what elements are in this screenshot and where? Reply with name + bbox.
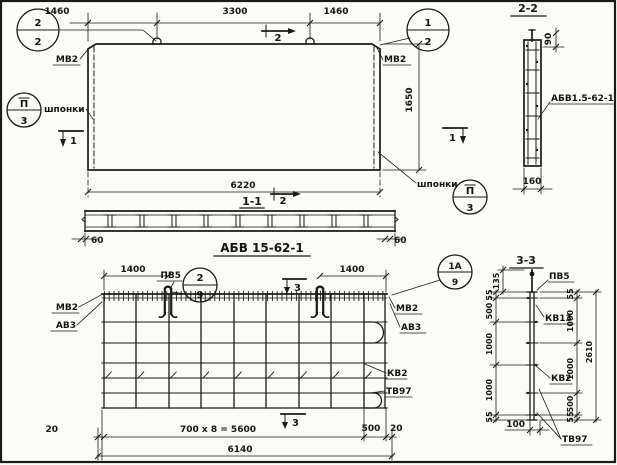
label-tv97-mesh: ТВ97 bbox=[386, 387, 412, 397]
section-mark-3-bottom: 3 bbox=[281, 414, 305, 429]
svg-text:1000: 1000 bbox=[485, 378, 494, 401]
mark-label: 2 bbox=[275, 33, 282, 44]
dim-100: 100 bbox=[505, 420, 549, 435]
dim-60-right: 60 bbox=[377, 233, 407, 246]
label-mv2-mesh-right: МВ2 bbox=[396, 304, 418, 314]
label-tv97-33: ТВ97 bbox=[562, 435, 588, 445]
top-chord-hatch bbox=[102, 291, 387, 301]
section-mark-2-on-1-1: 2 bbox=[271, 188, 301, 207]
svg-text:55: 55 bbox=[485, 289, 494, 301]
label-mv2-mesh-left: МВ2 bbox=[56, 303, 78, 313]
dim-6220: 6220 bbox=[85, 172, 383, 197]
section-title: 1-1 bbox=[242, 195, 262, 208]
callout-num: 2 bbox=[35, 18, 42, 29]
svg-text:1000: 1000 bbox=[485, 332, 494, 355]
label-abv-mesh: АБВ1.5-62-1 bbox=[551, 94, 614, 104]
callout-num: П bbox=[20, 99, 28, 110]
dim-height-text: 1650 bbox=[405, 87, 415, 112]
svg-text:60: 60 bbox=[91, 236, 104, 246]
svg-text:60: 60 bbox=[394, 236, 407, 246]
callout-sheet: 3 bbox=[467, 203, 474, 214]
mark-label: 3 bbox=[294, 283, 301, 294]
mark-label: 2 bbox=[280, 196, 287, 207]
dims-left-column: 55 500 1000 1000 55 bbox=[485, 289, 526, 423]
keys-left-leader bbox=[86, 109, 93, 119]
dim-20-left: 20 bbox=[45, 425, 58, 435]
svg-text:1000: 1000 bbox=[566, 309, 575, 332]
ribs bbox=[104, 215, 372, 227]
label-keys-left: шпонки bbox=[44, 105, 85, 115]
bar-hooks-row bbox=[104, 370, 386, 379]
bar-bend-upper bbox=[364, 322, 384, 343]
mark-label: 1 bbox=[449, 133, 456, 144]
label-keys-right: шпонки bbox=[417, 180, 458, 190]
label-av3-mesh-right: АВ3 bbox=[401, 323, 421, 333]
callout-sheet: 2 bbox=[35, 37, 42, 48]
plan-top-dimension: 1460 3300 1460 bbox=[44, 7, 383, 41]
callout-leader bbox=[59, 30, 156, 41]
keys-right-leader bbox=[378, 152, 416, 183]
callout-sheet: 3 bbox=[21, 116, 28, 127]
dim-6140: 6140 bbox=[227, 445, 252, 455]
svg-text:90: 90 bbox=[544, 33, 554, 46]
dim-60-left: 60 bbox=[72, 233, 104, 246]
plan-view: 1460 3300 1460 2 2 1 2 МВ2 МВ2 bbox=[7, 7, 487, 214]
svg-text:100: 100 bbox=[506, 420, 525, 430]
panel-outline bbox=[88, 44, 380, 170]
bar-bend-lower bbox=[364, 393, 382, 408]
dim-1460-right: 1460 bbox=[323, 7, 348, 17]
panel-drawing: 1460 3300 1460 2 2 1 2 МВ2 МВ2 bbox=[0, 0, 617, 465]
svg-text:55: 55 bbox=[566, 288, 575, 300]
horizontal-bars bbox=[102, 322, 387, 393]
drawing-sheet: 1460 3300 1460 2 2 1 2 МВ2 МВ2 bbox=[0, 0, 617, 465]
callout-1a-9: 1А 9 bbox=[392, 255, 472, 295]
svg-text:55: 55 bbox=[566, 411, 575, 423]
callout-key-left: П 3 bbox=[7, 93, 41, 127]
label-mv2-right: МВ2 bbox=[384, 55, 406, 65]
mesh-edge-bar bbox=[526, 270, 538, 420]
dim-spacing: 700 x 8 = 5600 bbox=[180, 425, 256, 435]
callout-num: П bbox=[466, 186, 474, 197]
section-mark-1-left: 1 bbox=[59, 131, 83, 147]
dim-total-text: 6220 bbox=[230, 181, 255, 191]
svg-text:1400: 1400 bbox=[339, 265, 364, 275]
mark-label: 3 bbox=[292, 418, 299, 429]
mark-label: 1 bbox=[70, 136, 77, 147]
label-pv5-33: ПВ5 bbox=[549, 272, 570, 282]
mesh-bottom-dims: 20 700 x 8 = 5600 500 20 6140 bbox=[45, 409, 402, 460]
callout-1-2: 1 2 bbox=[380, 9, 449, 51]
mesh-edge-ladder bbox=[526, 42, 539, 164]
panel-section-outline bbox=[524, 40, 541, 166]
section-3-3: 3-3 ПВ5 bbox=[485, 254, 601, 445]
svg-text:1000: 1000 bbox=[566, 357, 575, 380]
mesh-title: АБВ 15-62-1 bbox=[220, 241, 303, 255]
callout-sheet: 9 bbox=[197, 290, 204, 301]
svg-text:135: 135 bbox=[492, 272, 501, 289]
abv-leader bbox=[538, 102, 550, 119]
dim-3300: 3300 bbox=[222, 7, 247, 17]
dim-500: 500 bbox=[362, 424, 381, 434]
svg-text:160: 160 bbox=[523, 177, 542, 187]
callout-num: 1 bbox=[425, 18, 432, 29]
section-title: 3-3 bbox=[516, 254, 536, 267]
callout-sheet: 2 bbox=[425, 37, 432, 48]
dim-1400-right: 1400 bbox=[317, 265, 389, 292]
section-2-2: 2-2 90 АБВ1.5-62-1 bbox=[511, 2, 614, 194]
callout-leader bbox=[392, 280, 440, 295]
section-mark-2-top: 2 bbox=[262, 25, 296, 44]
vertical-bars bbox=[104, 294, 385, 408]
section-mark-1-right: 1 bbox=[443, 128, 467, 144]
svg-text:500: 500 bbox=[485, 302, 494, 319]
section-1-1-body bbox=[82, 211, 398, 231]
section-title: 2-2 bbox=[518, 2, 538, 15]
section-1-1: 1-1 2 bbox=[72, 188, 407, 246]
dim-90: 90 bbox=[543, 28, 564, 52]
callout-num: 1А bbox=[448, 262, 461, 272]
callout-num: 2 bbox=[197, 273, 204, 284]
label-kv2-mesh: КВ2 bbox=[387, 369, 407, 379]
dim-160: 160 bbox=[513, 168, 552, 194]
svg-text:1400: 1400 bbox=[120, 265, 145, 275]
label-pv5: ПВ5 bbox=[160, 271, 181, 281]
mesh-view: 1400 1400 ПВ5 2 9 1А 9 bbox=[45, 255, 472, 460]
label-mv2-left: МВ2 bbox=[56, 55, 78, 65]
svg-text:55: 55 bbox=[485, 411, 494, 423]
svg-text:500: 500 bbox=[566, 395, 575, 412]
dim-2610: 2610 bbox=[585, 340, 594, 363]
callout-sheet: 9 bbox=[452, 278, 458, 288]
label-av3-mesh-left: АВ3 bbox=[56, 321, 76, 331]
callout-key-right: П 3 bbox=[453, 180, 487, 214]
dims-right-column: 55 1000 1000 500 55 2610 bbox=[540, 288, 601, 423]
